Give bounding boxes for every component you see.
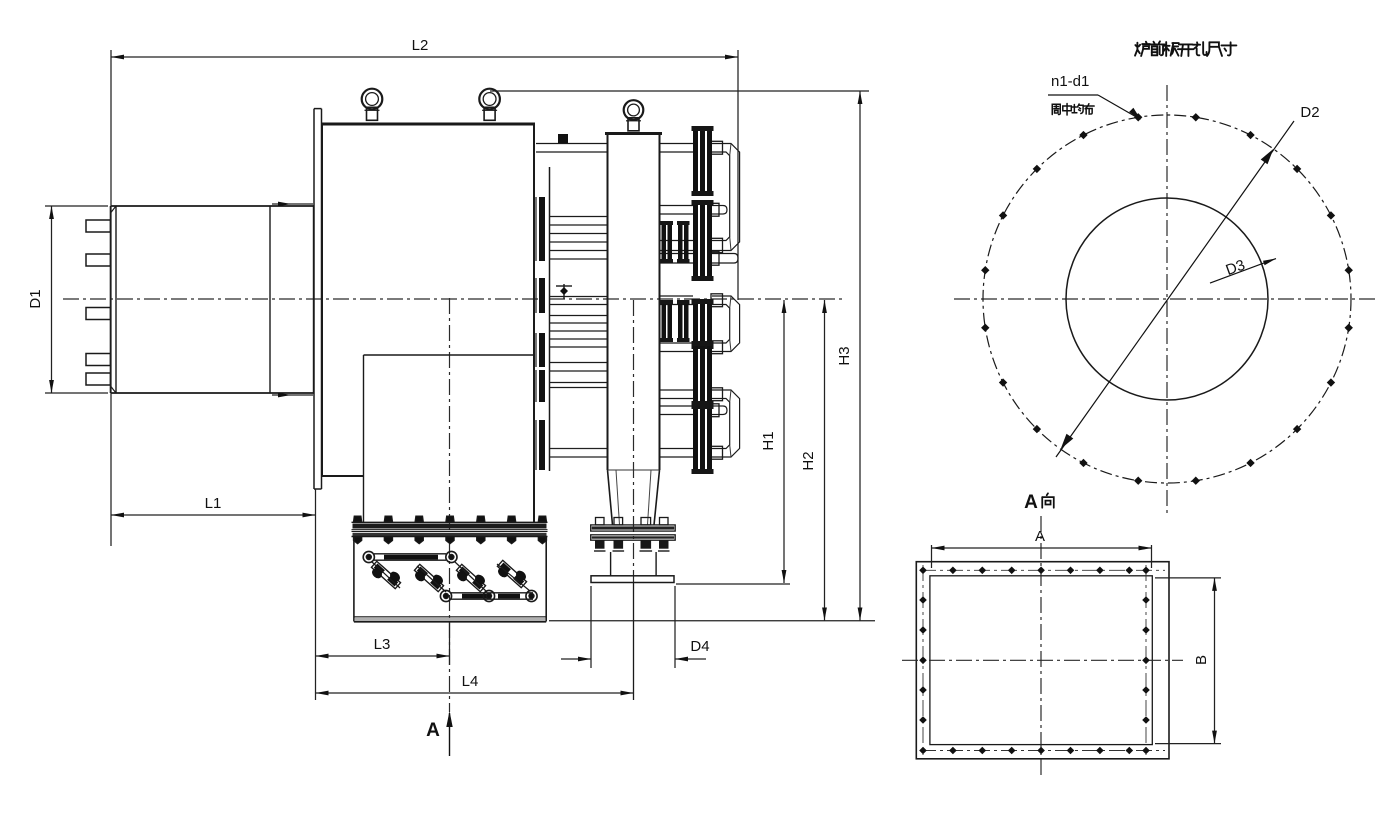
svg-text:L3: L3: [374, 636, 391, 653]
svg-text:A: A: [1035, 528, 1045, 545]
svg-text:D4: D4: [690, 638, 709, 655]
svg-text:D2: D2: [1300, 104, 1319, 121]
svg-text:H2: H2: [800, 451, 817, 470]
svg-text:A: A: [426, 720, 440, 741]
svg-text:L4: L4: [462, 673, 479, 690]
svg-text:H3: H3: [836, 346, 853, 365]
svg-text:n1-d1: n1-d1: [1051, 73, 1089, 90]
svg-text:D1: D1: [27, 289, 44, 308]
svg-text:L2: L2: [412, 37, 429, 54]
svg-text:B: B: [1193, 655, 1210, 665]
svg-text:A: A: [1024, 492, 1038, 513]
svg-text:H1: H1: [760, 431, 777, 450]
svg-text:L1: L1: [205, 495, 222, 512]
